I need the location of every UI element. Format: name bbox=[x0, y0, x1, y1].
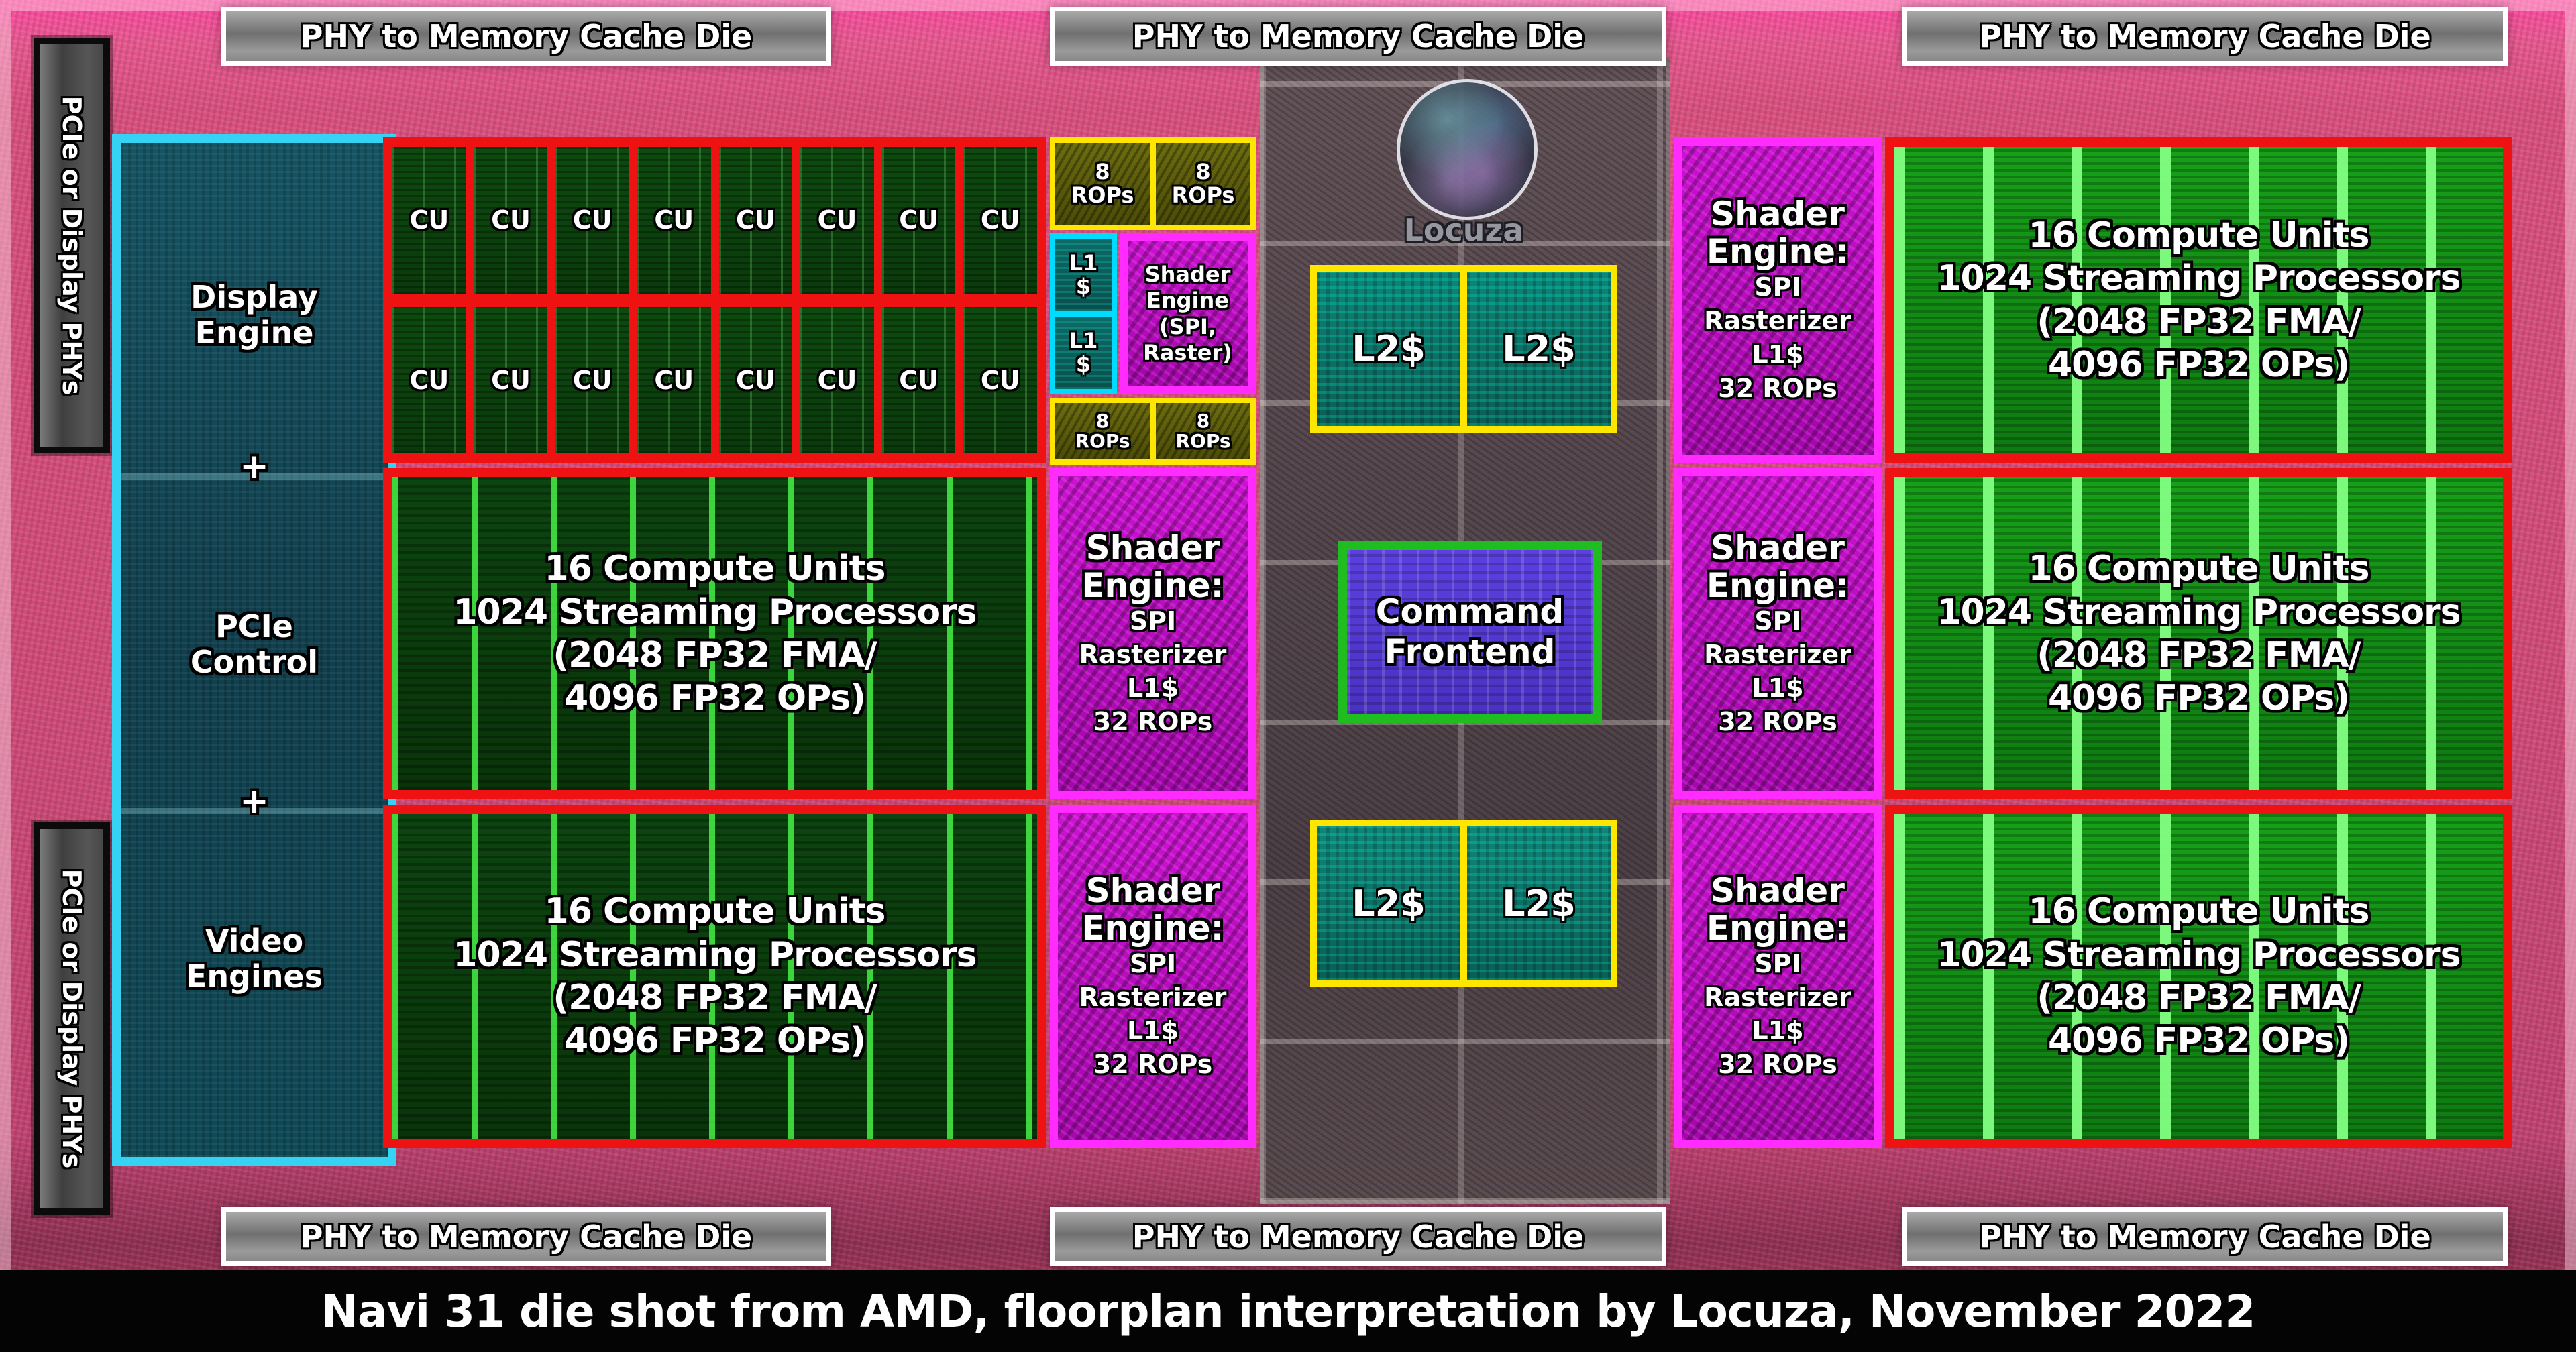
l1-dollar: $ bbox=[1076, 275, 1091, 298]
compute-block-line: 1024 Streaming Processors bbox=[1937, 934, 2460, 976]
cu-cell: CU bbox=[719, 307, 793, 454]
rops-count: 8 bbox=[1195, 160, 1210, 184]
compute-block-line: 1024 Streaming Processors bbox=[1937, 257, 2460, 300]
locuza-watermark-name: Locuza bbox=[1380, 212, 1548, 248]
shader-engine-block: Shader Engine: SPI Rasterizer L1$ 32 ROP… bbox=[1050, 468, 1256, 799]
display-engine-label: Display Engine bbox=[147, 280, 362, 351]
compute-block-line: 4096 FP32 OPs) bbox=[564, 1019, 865, 1062]
shader-engine-sub: 32 ROPs bbox=[1093, 705, 1212, 738]
caption-bar: Navi 31 die shot from AMD, floorplan int… bbox=[0, 1270, 2576, 1352]
shader-engine-title: Shader bbox=[1711, 872, 1845, 909]
compute-block-line: 16 Compute Units bbox=[545, 890, 885, 933]
cu-label: CU bbox=[818, 365, 857, 395]
phy-label-text: PHY to Memory Cache Die bbox=[301, 18, 753, 54]
shader-engine-sub: Rasterizer bbox=[1704, 980, 1851, 1014]
cu-label: CU bbox=[818, 205, 857, 235]
rops-pair: 8 ROPs 8 ROPs bbox=[1050, 398, 1256, 465]
shader-engine-title: Engine: bbox=[1707, 233, 1849, 270]
video-engines-label: Video Engines bbox=[147, 923, 362, 995]
compute-units-block: 16 Compute Units 1024 Streaming Processo… bbox=[383, 805, 1046, 1148]
cu-grid: CU CU CU CU CU CU CU CU CU CU CU CU CU C… bbox=[383, 137, 1046, 463]
l2-cache-block: L2$ bbox=[1317, 826, 1460, 980]
shader-engine-sub: L1$ bbox=[1752, 671, 1803, 705]
compute-block-line: (2048 FP32 FMA/ bbox=[2037, 634, 2360, 677]
shader-engine-title: Engine: bbox=[1081, 909, 1224, 947]
caption-text: Navi 31 die shot from AMD, floorplan int… bbox=[321, 1286, 2255, 1337]
l2-label: L2$ bbox=[1352, 883, 1426, 925]
cu-label: CU bbox=[899, 365, 938, 395]
side-label-text: PCIe or Display PHYs bbox=[48, 838, 96, 1200]
pcie-control-label: PCIe Control bbox=[147, 610, 362, 681]
shader-engine-sub: Rasterizer bbox=[1079, 638, 1227, 671]
cu-label: CU bbox=[409, 365, 449, 395]
shader-engine-sub: L1$ bbox=[1752, 1014, 1803, 1048]
rops-block: 8 ROPs bbox=[1055, 403, 1150, 459]
compute-units-block: 16 Compute Units 1024 Streaming Processo… bbox=[383, 468, 1046, 799]
phy-label-bottom-center: PHY to Memory Cache Die bbox=[1050, 1207, 1666, 1266]
l2-cache-pair: L2$ L2$ bbox=[1310, 265, 1617, 433]
cu-label: CU bbox=[654, 365, 694, 395]
cu-cell: CU bbox=[637, 147, 711, 294]
cu-cell: CU bbox=[555, 307, 629, 454]
l2-cache-block: L2$ bbox=[1317, 272, 1460, 426]
side-label-pcie-display-phys-bottom: PCIe or Display PHYs bbox=[34, 822, 110, 1215]
cu-cell: CU bbox=[963, 307, 1037, 454]
compute-block-line: 4096 FP32 OPs) bbox=[564, 677, 865, 720]
shader-engine-sub: L1$ bbox=[1752, 338, 1803, 372]
phy-label-text: PHY to Memory Cache Die bbox=[301, 1219, 753, 1255]
cu-label: CU bbox=[573, 365, 612, 395]
rops-label: ROPs bbox=[1075, 431, 1130, 451]
locuza-watermark-logo bbox=[1397, 79, 1538, 220]
compute-block-line: 16 Compute Units bbox=[2029, 214, 2369, 257]
phy-label-top-left: PHY to Memory Cache Die bbox=[221, 7, 831, 66]
l2-label: L2$ bbox=[1352, 328, 1426, 370]
compute-block-line: 4096 FP32 OPs) bbox=[2048, 677, 2349, 720]
shader-engine-sub: Rasterizer bbox=[1704, 638, 1851, 671]
rops-count: 8 bbox=[1197, 411, 1210, 431]
side-label-text: PCIe or Display PHYs bbox=[48, 64, 96, 427]
shader-front-line: (SPI, bbox=[1159, 314, 1216, 340]
rops-block: 8 ROPs bbox=[1055, 143, 1150, 225]
l1-dollar: $ bbox=[1076, 353, 1091, 376]
cu-label: CU bbox=[654, 205, 694, 235]
shader-engine-sub: L1$ bbox=[1127, 1014, 1179, 1048]
rops-block: 8 ROPs bbox=[1156, 143, 1250, 225]
compute-block-line: (2048 FP32 FMA/ bbox=[553, 976, 876, 1019]
cu-label: CU bbox=[573, 205, 612, 235]
cu-label: CU bbox=[736, 365, 775, 395]
rops-count: 8 bbox=[1095, 160, 1110, 184]
compute-block-line: 1024 Streaming Processors bbox=[1937, 591, 2460, 634]
cu-label: CU bbox=[981, 205, 1020, 235]
cu-label: CU bbox=[981, 365, 1020, 395]
compute-block-line: 4096 FP32 OPs) bbox=[2048, 343, 2349, 386]
shader-engine-title: Engine: bbox=[1081, 567, 1224, 604]
rops-pair: 8 ROPs 8 ROPs bbox=[1050, 137, 1256, 230]
shader-engine-block: Shader Engine: SPI Rasterizer L1$ 32 ROP… bbox=[1050, 805, 1256, 1148]
compute-block-line: 16 Compute Units bbox=[2029, 890, 2369, 933]
compute-units-block: 16 Compute Units 1024 Streaming Processo… bbox=[1885, 468, 2512, 799]
compute-block-line: (2048 FP32 FMA/ bbox=[2037, 976, 2360, 1019]
shader-engine-block: Shader Engine: SPI Rasterizer L1$ 32 ROP… bbox=[1674, 468, 1882, 799]
compute-block-line: 1024 Streaming Processors bbox=[453, 591, 976, 634]
phy-label-top-right: PHY to Memory Cache Die bbox=[1902, 7, 2508, 66]
rops-label: ROPs bbox=[1175, 431, 1230, 451]
compute-block-line: (2048 FP32 FMA/ bbox=[553, 634, 876, 677]
shader-engine-title: Shader bbox=[1711, 195, 1845, 233]
rops-label: ROPs bbox=[1071, 184, 1134, 207]
cu-cell: CU bbox=[800, 307, 874, 454]
l2-cache-pair: L2$ L2$ bbox=[1310, 820, 1617, 987]
shader-engine-sub: 32 ROPs bbox=[1718, 1048, 1837, 1081]
cu-label: CU bbox=[409, 205, 449, 235]
shader-engine-sub: SPI bbox=[1130, 947, 1176, 980]
phy-label-text: PHY to Memory Cache Die bbox=[1979, 1219, 2431, 1255]
phy-label-bottom-left: PHY to Memory Cache Die bbox=[221, 1207, 831, 1266]
shader-engine-sub: 32 ROPs bbox=[1718, 372, 1837, 405]
shader-engine-title: Shader bbox=[1086, 872, 1220, 909]
rops-count: 8 bbox=[1096, 411, 1109, 431]
cu-cell: CU bbox=[963, 147, 1037, 294]
cu-cell: CU bbox=[392, 147, 466, 294]
shader-front-line: Raster) bbox=[1143, 340, 1232, 366]
compute-block-line: 4096 FP32 OPs) bbox=[2048, 1019, 2349, 1062]
command-frontend-block: Command Frontend bbox=[1338, 541, 1602, 723]
rops-block: 8 ROPs bbox=[1156, 403, 1250, 459]
compute-units-block: 16 Compute Units 1024 Streaming Processo… bbox=[1885, 137, 2512, 463]
shader-engine-block: Shader Engine: SPI Rasterizer L1$ 32 ROP… bbox=[1674, 137, 1882, 463]
command-frontend-line: Frontend bbox=[1385, 632, 1556, 672]
cu-cell: CU bbox=[392, 307, 466, 454]
shader-engine-sub: Rasterizer bbox=[1704, 304, 1851, 337]
cu-label: CU bbox=[736, 205, 775, 235]
shader-engine-sub: SPI bbox=[1130, 604, 1176, 638]
phy-label-bottom-right: PHY to Memory Cache Die bbox=[1902, 1207, 2508, 1266]
l1-cache-block: L1 $ bbox=[1055, 239, 1112, 311]
cu-cell: CU bbox=[637, 307, 711, 454]
phy-label-text: PHY to Memory Cache Die bbox=[1132, 18, 1585, 54]
l2-cache-block: L2$ bbox=[1467, 272, 1611, 426]
l2-cache-block: L2$ bbox=[1467, 826, 1611, 980]
io-block: Display Engine + PCIe Control + Video En… bbox=[112, 134, 396, 1166]
cu-cell: CU bbox=[882, 307, 956, 454]
shader-engine-sub: SPI bbox=[1754, 270, 1801, 304]
cu-cell: CU bbox=[719, 147, 793, 294]
phy-label-text: PHY to Memory Cache Die bbox=[1979, 18, 2431, 54]
shader-engine-title: Shader bbox=[1711, 529, 1845, 567]
cu-cell: CU bbox=[474, 307, 548, 454]
l2-label: L2$ bbox=[1502, 883, 1576, 925]
compute-block-line: (2048 FP32 FMA/ bbox=[2037, 300, 2360, 343]
l1-label: L1 bbox=[1069, 251, 1098, 275]
shader-engine-sub: 32 ROPs bbox=[1718, 705, 1837, 738]
plus-sign: + bbox=[147, 782, 362, 822]
cu-cell: CU bbox=[800, 147, 874, 294]
shader-engine-sub: SPI bbox=[1754, 604, 1801, 638]
shader-engine-title: Shader bbox=[1086, 529, 1220, 567]
cu-cell: CU bbox=[882, 147, 956, 294]
shader-engine-sub: 32 ROPs bbox=[1093, 1048, 1212, 1081]
shader-engine-title: Engine: bbox=[1707, 567, 1849, 604]
l1-label: L1 bbox=[1069, 329, 1098, 353]
side-label-pcie-display-phys-top: PCIe or Display PHYs bbox=[34, 38, 110, 453]
cu-cell: CU bbox=[555, 147, 629, 294]
shader-front-line: Engine bbox=[1146, 288, 1229, 314]
phy-label-top-center: PHY to Memory Cache Die bbox=[1050, 7, 1666, 66]
phy-label-text: PHY to Memory Cache Die bbox=[1132, 1219, 1585, 1255]
cu-cell: CU bbox=[474, 147, 548, 294]
shader-engine-sub: SPI bbox=[1754, 947, 1801, 980]
compute-block-line: 16 Compute Units bbox=[545, 547, 885, 590]
shader-engine-title: Engine: bbox=[1707, 909, 1849, 947]
l1-cache-block: L1 $ bbox=[1055, 317, 1112, 390]
shader-engine-sub: Rasterizer bbox=[1079, 980, 1227, 1014]
rops-label: ROPs bbox=[1172, 184, 1235, 207]
cu-label: CU bbox=[491, 365, 531, 395]
command-frontend-line: Command bbox=[1376, 591, 1564, 632]
cu-label: CU bbox=[899, 205, 938, 235]
compute-block-line: 16 Compute Units bbox=[2029, 547, 2369, 590]
shader-engine-block: Shader Engine: SPI Rasterizer L1$ 32 ROP… bbox=[1674, 805, 1882, 1148]
cu-label: CU bbox=[491, 205, 531, 235]
compute-block-line: 1024 Streaming Processors bbox=[453, 934, 976, 976]
l1-cache-column: L1 $ L1 $ bbox=[1050, 233, 1117, 394]
die-shot-annotation: PHY to Memory Cache Die PHY to Memory Ca… bbox=[0, 0, 2576, 1352]
shader-front-line: Shader bbox=[1145, 262, 1231, 288]
plus-sign: + bbox=[147, 447, 362, 488]
l2-label: L2$ bbox=[1502, 328, 1576, 370]
compute-units-block: 16 Compute Units 1024 Streaming Processo… bbox=[1885, 805, 2512, 1148]
shader-engine-sub: L1$ bbox=[1127, 671, 1179, 705]
shader-engine-front-block: Shader Engine (SPI, Raster) bbox=[1120, 233, 1256, 394]
